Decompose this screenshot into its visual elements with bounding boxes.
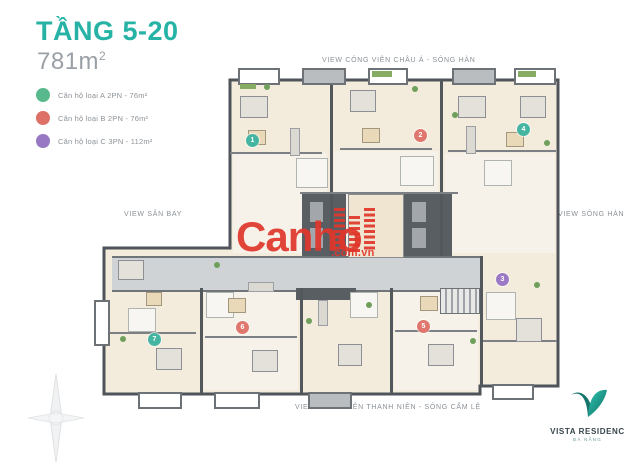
vista-v-icon: [567, 388, 609, 420]
plant-icon: [544, 140, 550, 146]
bed: [350, 90, 376, 112]
dining-table: [146, 292, 162, 306]
unit-badge-4: 4: [517, 123, 530, 136]
planter: [372, 71, 392, 77]
bed: [338, 344, 362, 366]
balcony: [238, 68, 280, 85]
bed: [520, 96, 546, 118]
room-wall: [395, 330, 477, 332]
unit-badge-1: 1: [246, 134, 259, 147]
planter: [518, 71, 536, 77]
bed: [240, 96, 268, 118]
room-wall: [205, 336, 297, 338]
unit-badge-3: 3: [496, 273, 509, 286]
plant-icon: [214, 262, 220, 268]
room-wall: [448, 150, 556, 152]
balcony: [302, 68, 346, 85]
bed: [458, 96, 486, 118]
party-wall: [480, 256, 483, 386]
bed: [156, 348, 182, 370]
developer-subtitle: ĐÀ NẴNG: [548, 437, 627, 442]
sofa: [290, 128, 300, 156]
plant-icon: [366, 302, 372, 308]
balcony: [94, 300, 110, 346]
plant-icon: [264, 84, 270, 90]
watermark-bar: [334, 208, 345, 252]
plant-icon: [452, 112, 458, 118]
bed: [118, 260, 144, 280]
plant-icon: [412, 86, 418, 92]
planter: [240, 84, 256, 89]
plant-icon: [306, 318, 312, 324]
floorplan-page: TẦNG 5-20 781m2 Căn hộ loại A 2PN - 76m²…: [0, 0, 627, 468]
party-wall: [390, 288, 393, 394]
bathroom: [484, 160, 512, 186]
dining-table: [420, 296, 438, 311]
balcony: [214, 392, 260, 409]
watermark-bar: [364, 208, 375, 252]
bathroom: [128, 308, 156, 332]
bathroom: [400, 156, 434, 186]
watermark-domain: .com.vn: [331, 247, 375, 259]
developer-logo: VISTA RESIDENC ĐÀ NẴNG: [548, 388, 627, 442]
unit-badge-7: 7: [148, 333, 161, 346]
plant-icon: [120, 336, 126, 342]
watermark-logo-icon: [334, 208, 382, 252]
developer-name: VISTA RESIDENC: [548, 427, 627, 436]
unit-badge-5: 5: [417, 320, 430, 333]
stairs: [440, 288, 480, 314]
compass-icon: [20, 372, 92, 464]
bed: [516, 318, 542, 342]
room-wall: [230, 152, 322, 154]
party-wall: [200, 288, 203, 394]
balcony: [492, 384, 534, 400]
balcony: [308, 392, 352, 409]
unit-badge-2: 2: [414, 129, 427, 142]
party-wall: [300, 288, 303, 394]
sofa: [318, 300, 328, 326]
room-wall: [340, 148, 432, 150]
bed: [252, 350, 278, 372]
bed: [428, 344, 454, 366]
balcony: [138, 392, 182, 409]
unit-badge-6: 6: [236, 321, 249, 334]
bathroom: [350, 292, 378, 318]
elevator-cab: [412, 202, 426, 222]
service-shaft: [296, 288, 356, 300]
bathroom: [486, 292, 516, 320]
sofa: [248, 282, 274, 292]
dining-table: [362, 128, 380, 143]
room-wall: [300, 192, 458, 194]
sofa: [466, 126, 476, 154]
party-wall: [440, 80, 443, 256]
bathroom: [296, 158, 328, 188]
plant-icon: [534, 282, 540, 288]
balcony: [452, 68, 496, 85]
dining-table: [228, 298, 246, 313]
corridor: [112, 256, 480, 292]
plant-icon: [470, 338, 476, 344]
elevator-cab: [412, 228, 426, 248]
